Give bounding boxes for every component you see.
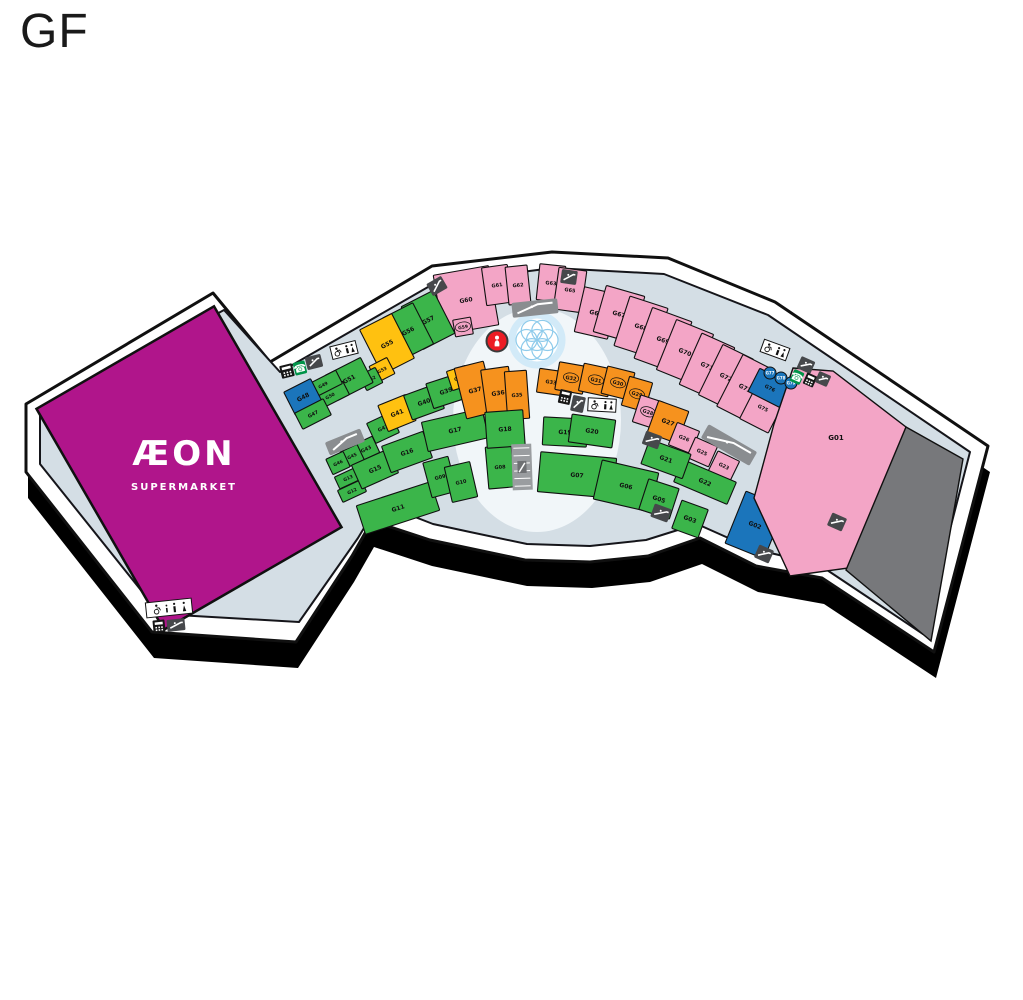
mall-floor-plan: ÆONSUPERMARKETG60G61G62G59G63G65G66G67G6… [0, 0, 1023, 1000]
svg-text:G78: G78 [777, 376, 786, 381]
accessible-restroom-icon [588, 398, 617, 412]
svg-text:G08: G08 [494, 464, 506, 471]
svg-text:G18: G18 [498, 426, 512, 434]
svg-text:G35: G35 [511, 392, 523, 399]
svg-text:G63: G63 [545, 280, 557, 287]
atm-icon [152, 619, 165, 632]
unit-g62[interactable]: G62 [505, 265, 531, 305]
svg-text:G07: G07 [570, 472, 584, 480]
fountain-ornament [512, 315, 562, 365]
svg-text:ÆON: ÆON [132, 434, 235, 474]
unit-g18[interactable]: G18 [485, 410, 525, 449]
escalator-icon [166, 618, 185, 632]
kiosk-g77[interactable]: G77 [764, 367, 776, 379]
svg-text:SUPERMARKET: SUPERMARKET [131, 482, 237, 493]
escalator-icon [560, 269, 578, 285]
svg-text:G62: G62 [512, 282, 524, 289]
mall-directory-page: GF ÆONSUPERMARKETG60G61G62G59G63G65G66G6… [0, 0, 1023, 1000]
unit-g59[interactable]: G59 [453, 317, 474, 337]
information-icon [487, 331, 508, 352]
svg-text:G77: G77 [766, 371, 775, 376]
svg-text:G01: G01 [828, 434, 844, 442]
unit-g08[interactable]: G08 [485, 445, 515, 489]
stairs-icon [511, 444, 533, 491]
unit-g20[interactable]: G20 [568, 414, 615, 448]
